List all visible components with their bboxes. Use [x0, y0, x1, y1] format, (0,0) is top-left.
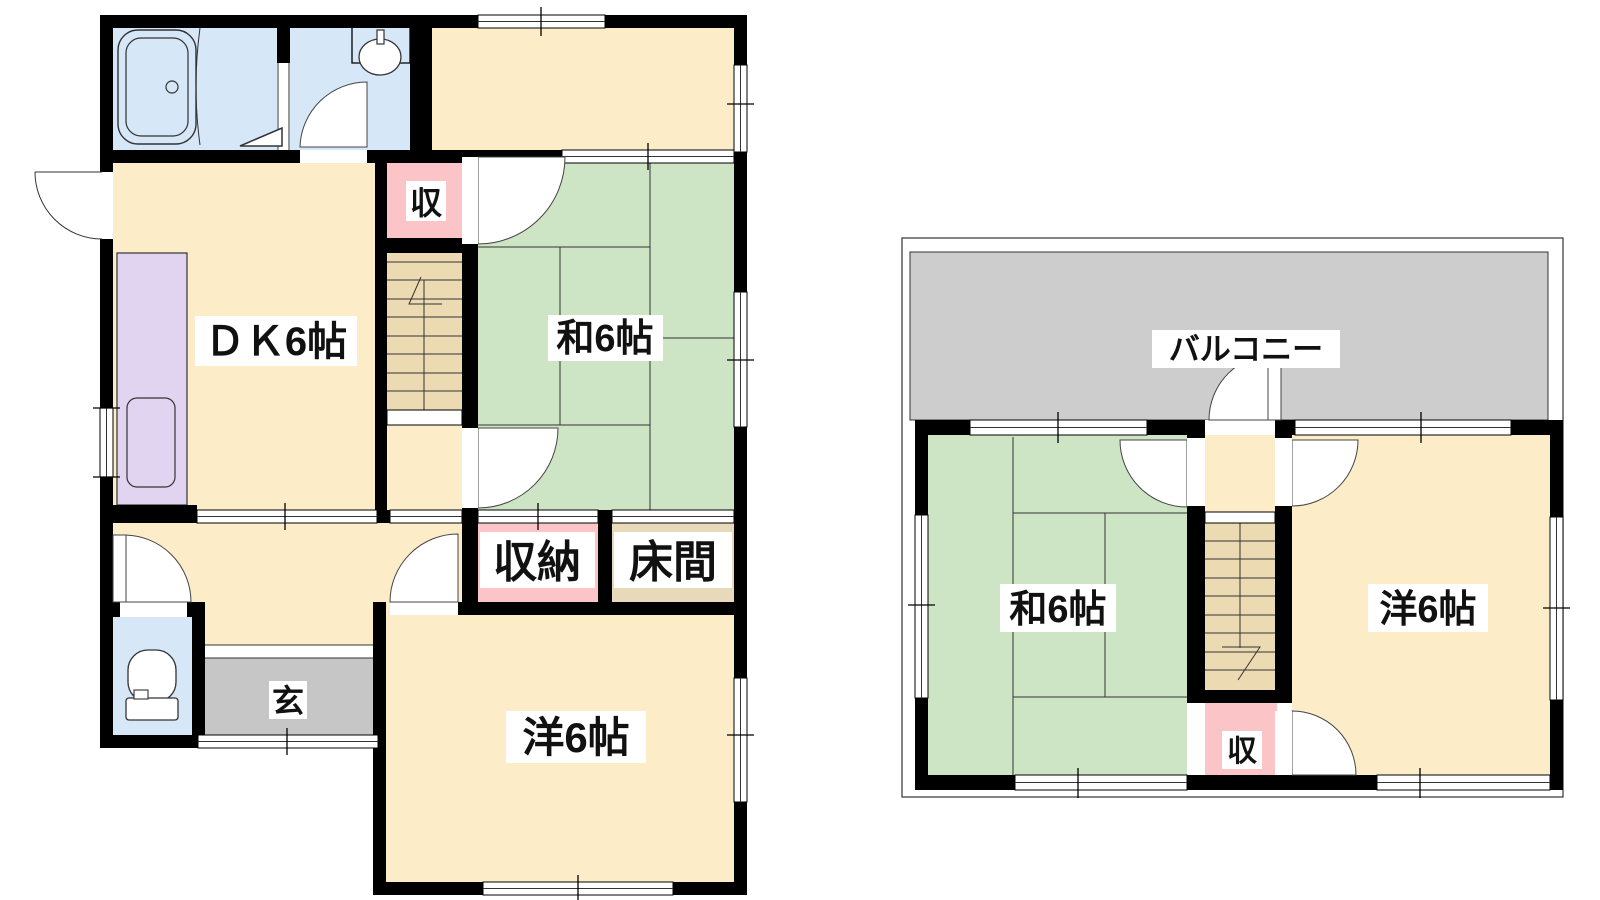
- label-balcony: バルコニー: [1169, 332, 1323, 367]
- stairs-opening-2f: [1205, 512, 1275, 523]
- toilet-doorway: [120, 602, 187, 617]
- washitsu-door-bottom-leaf: [462, 428, 478, 508]
- floor-plan-svg: ＤＫ6帖 和6帖 収 収納 床間 玄 洋6帖: [0, 0, 1600, 900]
- landing-2f: [1205, 435, 1275, 512]
- floor1: ＤＫ6帖 和6帖 収 収納 床間 玄 洋6帖: [35, 7, 754, 900]
- floor2: バルコニー 和6帖 洋6帖 収: [902, 238, 1570, 798]
- label-closet-1f: 収: [410, 185, 442, 221]
- kitchen-sink: [127, 398, 175, 487]
- stairs-opening-1f: [387, 410, 462, 425]
- washitsu-door-2f-leaf: [1187, 438, 1205, 506]
- back-door: [35, 172, 102, 239]
- toilet-door-leaf: [113, 535, 126, 602]
- western-doorway-1f: [390, 602, 458, 615]
- label-dk: ＤＫ6帖: [205, 320, 347, 364]
- label-western-1f: 洋6帖: [522, 714, 629, 761]
- back-doorway: [100, 172, 113, 239]
- corridor-1f: [387, 410, 462, 523]
- label-western-2f: 洋6帖: [1379, 589, 1476, 631]
- label-storage: 収納: [493, 538, 581, 587]
- balcony-doorway: [1205, 420, 1275, 435]
- genkan-step: [205, 645, 373, 658]
- kitchen-counter: [117, 253, 187, 505]
- washitsu-door-top-leaf: [462, 157, 478, 244]
- western-door-2f-leaf: [1275, 438, 1292, 506]
- tokonoma-front: [612, 510, 734, 523]
- washroom-doorway: [300, 150, 367, 163]
- sliding-door-corridor: [390, 510, 462, 523]
- label-washitsu-2f: 和6帖: [1009, 589, 1106, 631]
- label-entrance: 玄: [272, 683, 304, 719]
- closet-door-2f-leaf: [1275, 711, 1292, 775]
- floor-plan-stage: ＤＫ6帖 和6帖 収 収納 床間 玄 洋6帖: [0, 0, 1600, 900]
- label-closet-2f: 収: [1227, 735, 1258, 768]
- room-top-right: [432, 28, 734, 150]
- label-washitsu-1f: 和6帖: [556, 318, 653, 360]
- toilet-fixture: [126, 650, 178, 720]
- label-tokonoma: 床間: [629, 538, 717, 587]
